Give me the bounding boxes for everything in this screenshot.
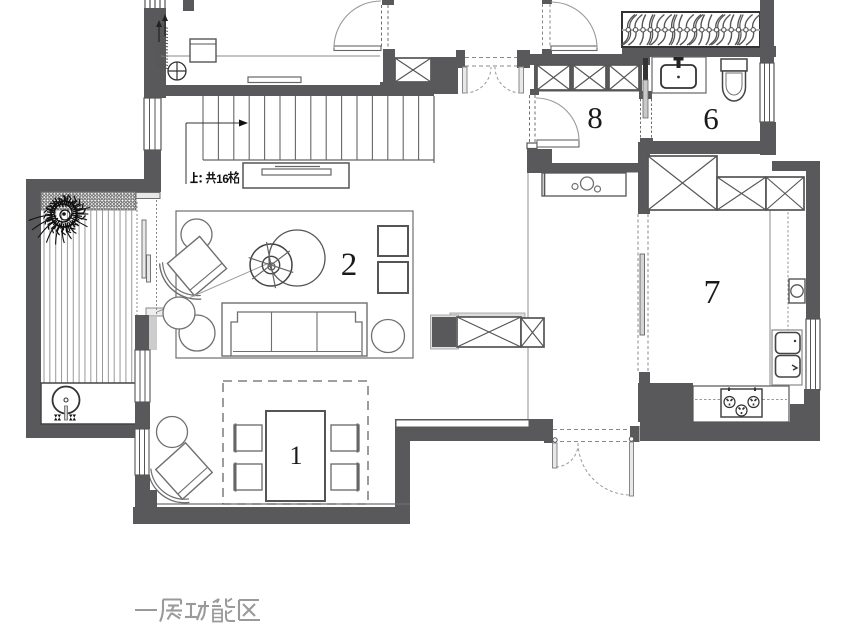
svg-text:2: 2: [341, 247, 358, 283]
svg-text:1: 1: [290, 441, 303, 470]
svg-text:8: 8: [587, 100, 603, 135]
svg-text:7: 7: [704, 274, 721, 311]
svg-text:6: 6: [703, 101, 719, 136]
svg-text:16: 16: [216, 174, 228, 186]
